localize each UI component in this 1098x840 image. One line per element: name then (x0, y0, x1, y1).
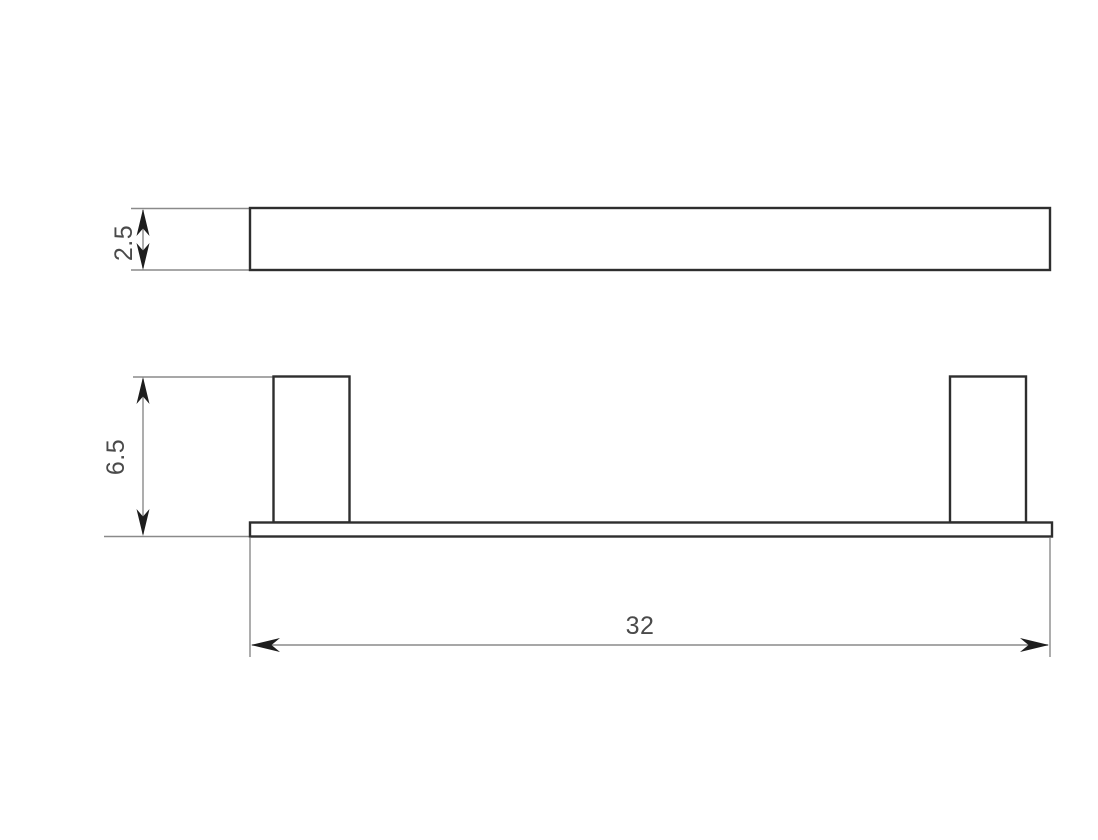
front-view-height-label: 6.5 (102, 439, 130, 475)
top-view-thickness-label: 2.5 (110, 225, 138, 261)
front-view-right-post-outline (950, 377, 1026, 523)
top-view: 2.5 (110, 208, 1050, 270)
front-view-left-post-outline (274, 377, 350, 523)
front-view-base-bar-outline (250, 523, 1052, 537)
technical-drawing: 2.5 6.5 32 (0, 0, 1098, 840)
front-view: 6.5 32 (102, 377, 1052, 658)
top-view-bar-outline (250, 208, 1050, 270)
front-view-width-label: 32 (626, 612, 655, 640)
technical-drawing-canvas: 2.5 6.5 32 (0, 0, 1098, 840)
